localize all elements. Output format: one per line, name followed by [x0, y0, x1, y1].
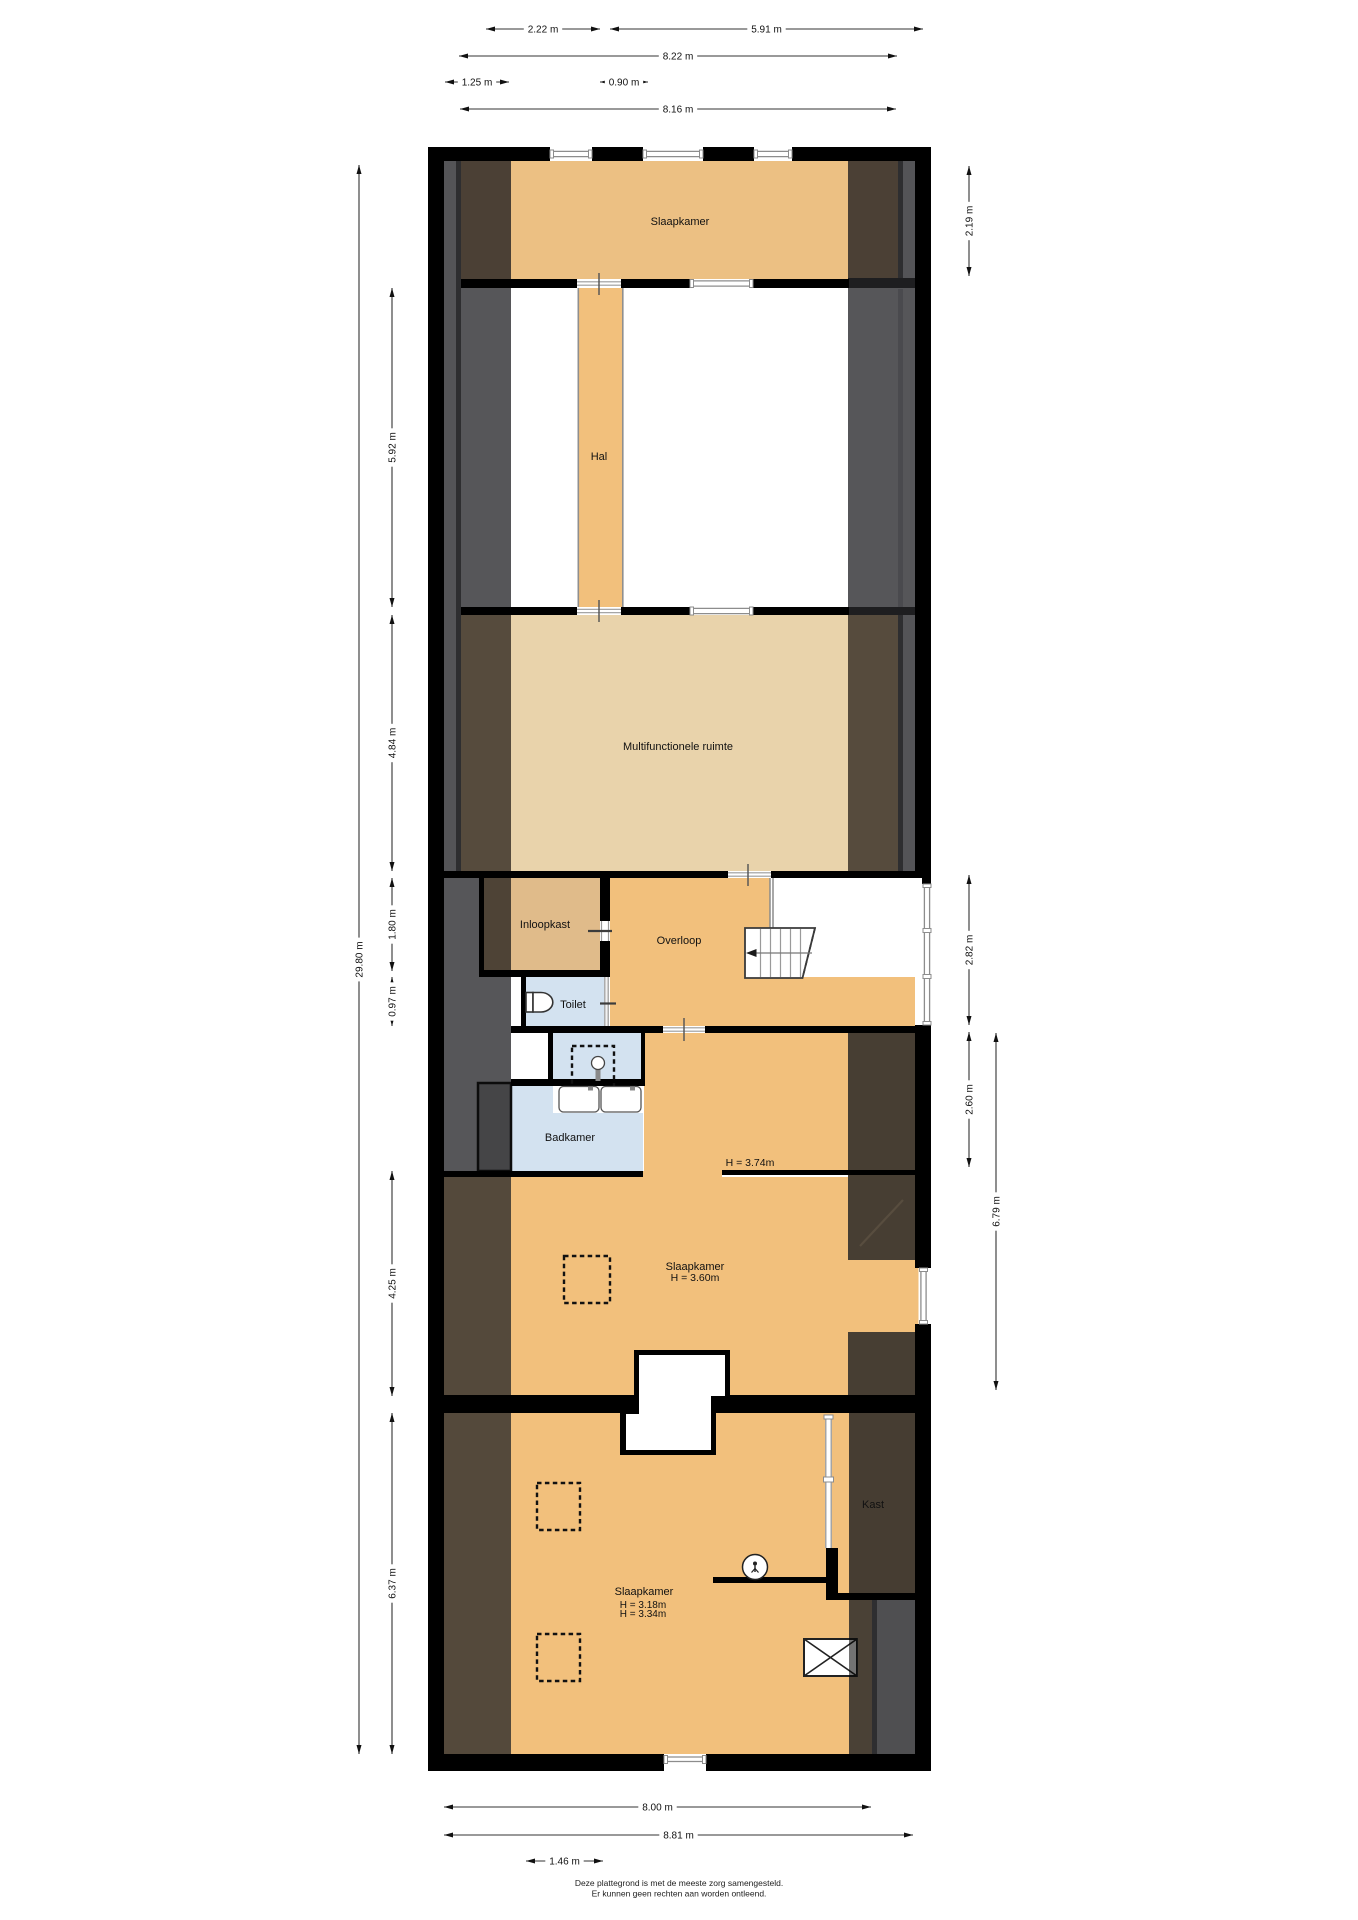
svg-text:5.91 m: 5.91 m: [751, 25, 782, 36]
svg-text:6.37 m: 6.37 m: [388, 1568, 399, 1599]
svg-text:1.25 m: 1.25 m: [462, 78, 493, 89]
svg-text:6.79 m: 6.79 m: [992, 1196, 1003, 1227]
svg-text:2.22 m: 2.22 m: [528, 25, 559, 36]
svg-text:2.82 m: 2.82 m: [965, 935, 976, 966]
svg-text:8.00 m: 8.00 m: [642, 1803, 673, 1814]
svg-text:8.22 m: 8.22 m: [663, 52, 694, 63]
svg-text:2.19 m: 2.19 m: [965, 206, 976, 237]
svg-text:H = 3.74m: H = 3.74m: [726, 1157, 775, 1169]
svg-text:Hal: Hal: [591, 451, 608, 463]
svg-text:8.81 m: 8.81 m: [663, 1831, 694, 1842]
svg-text:29.80 m: 29.80 m: [355, 941, 366, 977]
svg-text:Toilet: Toilet: [560, 999, 586, 1011]
svg-text:H = 3.60m: H = 3.60m: [671, 1272, 720, 1284]
svg-text:Multifunctionele ruimte: Multifunctionele ruimte: [623, 741, 733, 753]
svg-text:Badkamer: Badkamer: [545, 1132, 595, 1144]
svg-text:0.90 m: 0.90 m: [609, 78, 640, 89]
svg-text:Er kunnen geen rechten aan wor: Er kunnen geen rechten aan worden ontlee…: [592, 1889, 767, 1899]
svg-text:Kast: Kast: [862, 1499, 884, 1511]
svg-text:1.46 m: 1.46 m: [549, 1857, 580, 1868]
svg-text:4.84 m: 4.84 m: [388, 728, 399, 759]
svg-text:H = 3.34m: H = 3.34m: [620, 1609, 666, 1620]
svg-text:1.80 m: 1.80 m: [388, 909, 399, 940]
svg-text:2.60 m: 2.60 m: [965, 1084, 976, 1115]
svg-text:4.25 m: 4.25 m: [388, 1268, 399, 1299]
svg-text:Slaapkamer: Slaapkamer: [651, 216, 710, 228]
svg-text:Deze plattegrond is met de mee: Deze plattegrond is met de meeste zorg s…: [575, 1878, 783, 1888]
svg-text:5.92 m: 5.92 m: [388, 432, 399, 463]
svg-text:0.97 m: 0.97 m: [388, 986, 399, 1017]
svg-text:8.16 m: 8.16 m: [663, 105, 694, 116]
svg-text:Overloop: Overloop: [657, 935, 702, 947]
svg-text:Inloopkast: Inloopkast: [520, 919, 570, 931]
svg-text:Slaapkamer: Slaapkamer: [615, 1586, 674, 1598]
